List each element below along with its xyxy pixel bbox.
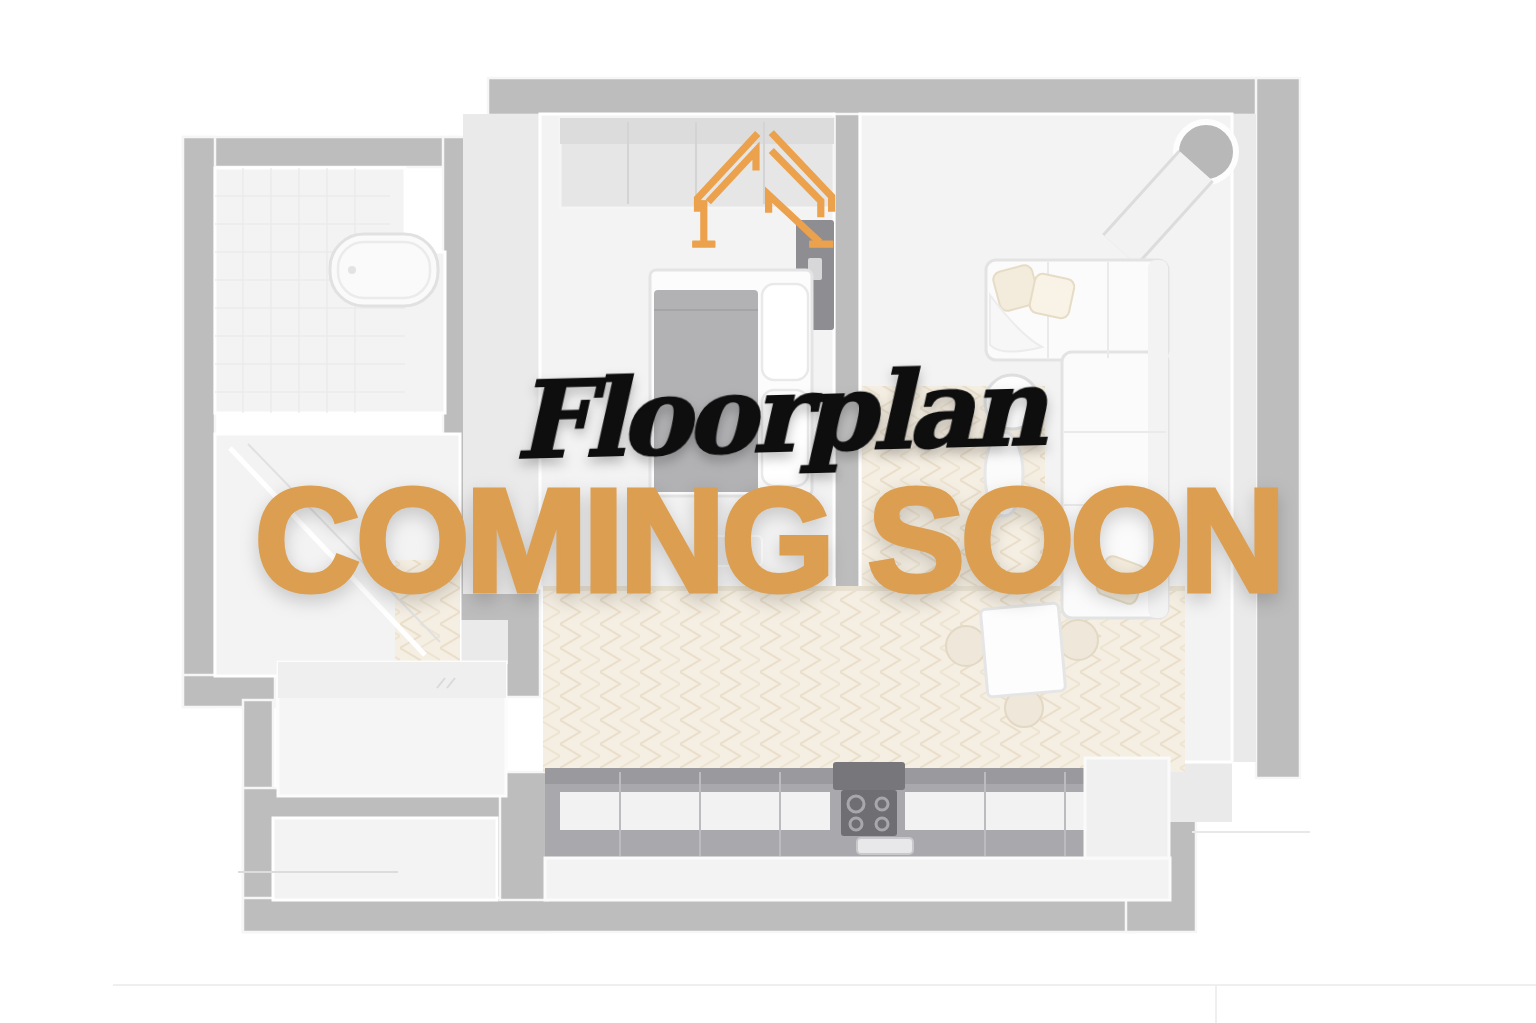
floorplan-coming-soon-graphic: Floorplan COMING SOON	[0, 0, 1536, 1023]
roof-truss-icon	[684, 116, 846, 268]
bottom-divider-line	[113, 984, 1536, 986]
bathtub	[330, 234, 438, 306]
dining-chair	[946, 626, 986, 666]
bottom-divider-tick	[1215, 984, 1217, 1023]
storage-room	[273, 818, 497, 900]
coming-soon-headline: COMING SOON	[0, 468, 1536, 614]
